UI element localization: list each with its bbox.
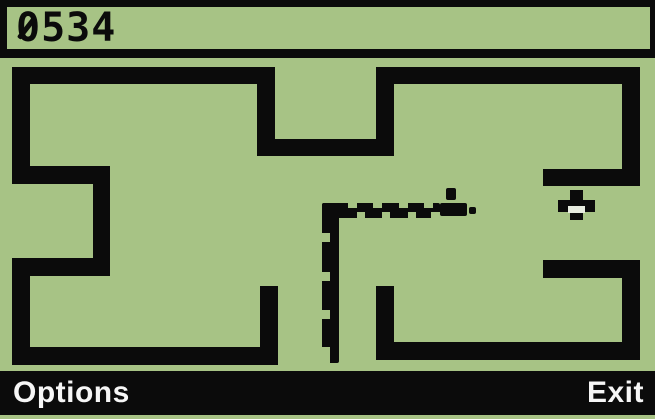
score-value: 0534 [16,7,116,49]
score-bar: 0534 [0,0,655,58]
score-text: 0534 [16,5,116,51]
snake-game-screen: 0534 Options Exit [0,0,655,419]
food-highlight [568,206,585,213]
exit-softkey[interactable]: Exit [587,371,644,415]
food-highlight-layer [0,0,655,419]
softkey-bar: Options Exit [0,371,655,415]
options-softkey[interactable]: Options [13,371,130,415]
